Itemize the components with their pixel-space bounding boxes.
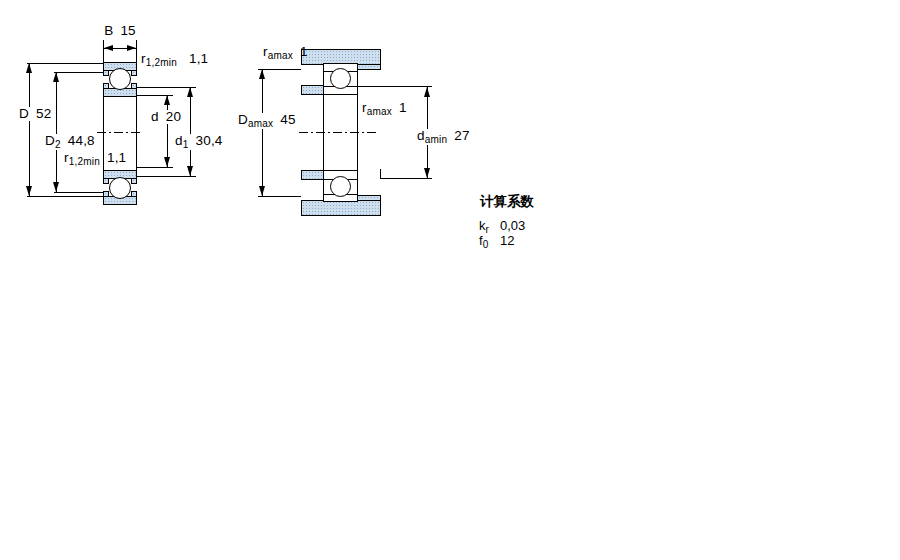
left-ball-top xyxy=(109,68,131,90)
shaft-shoulder-bottom xyxy=(301,170,324,180)
dim-d-symbol: d xyxy=(151,110,159,124)
dim-Da-value: 45 xyxy=(280,113,295,127)
left-outer-ring-top-lip-right xyxy=(131,70,137,76)
right-view: ramax1 Damax45 ramax1 damin27 xyxy=(230,0,480,230)
dim-Da-subscript: amax xyxy=(248,119,273,129)
dim-B-arrow-right xyxy=(127,45,136,51)
factor-f0-subscript: 0 xyxy=(483,240,489,250)
dim-d-label: d20 xyxy=(149,110,183,124)
dim-d-arrow-top xyxy=(164,95,170,105)
dim-r-bottom-subscript: 1,2min xyxy=(69,157,100,167)
dim-da-label: damin27 xyxy=(415,129,472,145)
dim-D-arrow-top xyxy=(26,63,32,73)
dim-D-symbol: D xyxy=(19,107,29,121)
left-outer-ring-top-lip-left xyxy=(103,70,109,76)
dim-da-arrow-top xyxy=(424,87,430,97)
dim-D-label: D52 xyxy=(17,107,53,121)
shaft-shoulder-top xyxy=(301,85,324,95)
right-ball-top xyxy=(330,68,351,89)
dim-ra-mid-label: ramax1 xyxy=(362,101,407,117)
dim-D-value: 52 xyxy=(36,107,51,121)
dim-r-top-value: 1,1 xyxy=(189,52,208,66)
dim-da-subscript: amin xyxy=(425,135,447,145)
dim-d1-arrow-bottom xyxy=(187,166,193,176)
dim-r-bottom-value: 1,1 xyxy=(107,151,126,165)
dim-d-value: 20 xyxy=(166,110,181,124)
calculation-factors: 计算系数 kr 0,03 f0 12 xyxy=(479,193,599,253)
dim-D2-arrow-top xyxy=(53,72,59,82)
factor-kr-value: 0,03 xyxy=(500,219,525,233)
dim-d1-arrow-top xyxy=(187,87,193,97)
dim-da-ext-top xyxy=(358,86,432,87)
dim-d1-subscript: 1 xyxy=(183,140,189,150)
dim-d1-value: 30,4 xyxy=(195,134,222,148)
housing-shoulder-bottom-right xyxy=(357,195,381,201)
dim-ra-top-value: 1 xyxy=(300,45,308,59)
dim-D2-value: 44,8 xyxy=(68,134,95,148)
dim-D-ext-bottom xyxy=(27,196,103,197)
dim-D-line xyxy=(29,63,30,196)
dim-da-value: 27 xyxy=(454,129,469,143)
dim-ra-mid-value: 1 xyxy=(399,101,407,115)
housing-block-bottom xyxy=(301,200,381,216)
dim-d-arrow-bottom xyxy=(164,157,170,167)
dim-da-step-edge xyxy=(380,169,381,178)
dim-D-arrow-bottom xyxy=(26,186,32,196)
left-view: B15 r1,2min1,1 D52 D244,8 d20 xyxy=(0,0,230,230)
dim-D2-ext-bottom xyxy=(54,192,103,193)
right-centerline xyxy=(299,132,377,133)
dim-ra-top-label: ramax1 xyxy=(263,45,308,61)
left-bore-edge-right xyxy=(136,96,137,171)
dim-D2-ext-top xyxy=(54,72,103,73)
dim-r-top-subscript: 1,2min xyxy=(146,58,177,68)
bearing-dimension-drawing: B15 r1,2min1,1 D52 D244,8 d20 xyxy=(0,0,900,560)
dim-Da-label: Damax45 xyxy=(236,113,298,129)
dim-d1-symbol: d xyxy=(175,134,183,148)
dim-B-ext-right xyxy=(136,40,137,62)
dim-Da-arrow-top xyxy=(259,69,265,79)
left-ball-bottom xyxy=(109,177,131,199)
dim-D-ext-top xyxy=(27,63,103,64)
dim-Da-arrow-bottom xyxy=(259,186,265,196)
left-inner-ring-bottom-lip-left xyxy=(103,178,109,184)
calculation-factors-title: 计算系数 xyxy=(480,193,534,211)
right-ball-bottom xyxy=(330,176,351,197)
dim-D2-arrow-bottom xyxy=(53,182,59,192)
dim-da-ext-bottom xyxy=(380,178,432,179)
factor-f0: f0 12 xyxy=(479,234,514,250)
dim-d1-label: d130,4 xyxy=(173,134,225,150)
dim-Da-line xyxy=(262,69,263,196)
dim-D2-subscript: 2 xyxy=(55,140,61,150)
factor-f0-value: 12 xyxy=(500,234,514,248)
dim-d-ext-bottom xyxy=(137,167,173,168)
dim-d1-ext-bottom xyxy=(137,176,196,177)
dim-r-bottom-label: r1,2min1,1 xyxy=(64,151,126,167)
dim-D2-line xyxy=(56,72,57,192)
dim-r-top-label: r1,2min1,1 xyxy=(141,52,208,68)
dim-B-value: 15 xyxy=(120,24,135,38)
dim-Da-symbol: D xyxy=(238,113,248,127)
dim-B-symbol: B xyxy=(104,24,113,38)
housing-shoulder-top-right xyxy=(357,64,381,70)
dim-B-label: B15 xyxy=(103,24,137,38)
left-inner-ring-bottom-lip-right xyxy=(131,178,137,184)
dim-ra-mid-subscript: amax xyxy=(367,107,392,117)
dim-d1-line xyxy=(190,87,191,176)
dim-B-ext-left xyxy=(103,40,104,62)
dim-B-arrow-left xyxy=(104,45,113,51)
dim-da-arrow-bottom xyxy=(424,168,430,178)
dim-ra-top-subscript: amax xyxy=(268,51,293,61)
dim-Da-ext-bottom xyxy=(258,196,301,197)
dim-da-symbol: d xyxy=(417,129,425,143)
dim-D2-symbol: D xyxy=(45,134,55,148)
dim-D2-label: D244,8 xyxy=(43,134,97,150)
left-centerline xyxy=(97,132,143,133)
